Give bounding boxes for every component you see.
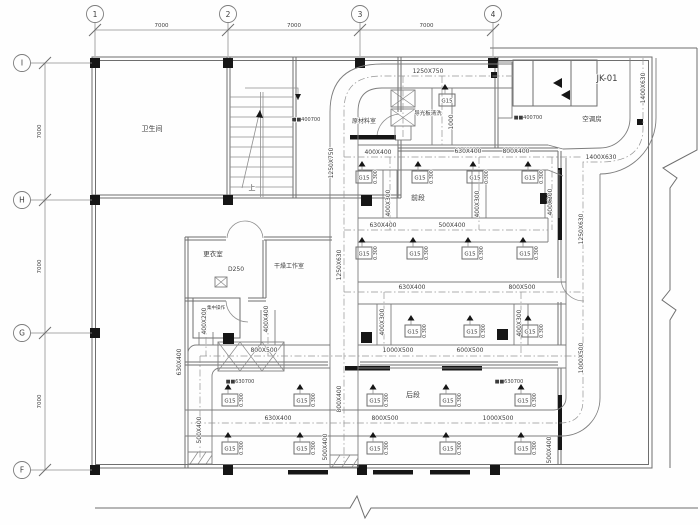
diffuser-tag: G15 [442,399,454,405]
flow-arrow-icon [225,432,232,438]
duct-size-label: D250 [228,266,244,273]
grid-col-label: 4 [491,10,496,19]
duct-size-label: 1000X500 [383,347,414,354]
duct-size-label-vertical: 500X400 [196,416,203,443]
grille-label: ■■630700 [226,379,255,385]
diffuser-tag: G15 [519,252,531,258]
flow-arrow-icon [465,237,472,243]
jk01-air-handling-unit [513,60,597,106]
labels-layer: 卫生间原材料室导光板清洗空调房更衣室干燥工作室集中操作前段后段上JK-01125… [142,68,648,464]
grid-row-label: H [19,196,25,205]
flow-arrow-icon [410,237,417,243]
diffuser-g15: G150.300 [367,432,390,455]
level-label: 0.300 [239,441,245,455]
hvac-floor-plan-drawing: 1234700070007000IHGF700070007000 G150.30… [0,0,700,525]
diffuser-tag: G15 [524,330,536,336]
room-label: 导光板清洗 [414,109,442,117]
duct-size-label: 800X500 [508,284,535,291]
diffuser-g15: G150.300 [464,315,487,338]
grid-row-label: G [19,329,25,338]
flow-arrow-icon [370,384,377,390]
flow-arrow-icon [443,384,450,390]
duct-size-label-vertical: 400X300 [547,188,554,215]
room-label: 集中操作 [207,304,225,311]
diffuser-tag: G15 [524,176,536,182]
duct-size-label-vertical: 1000 [448,114,455,129]
diffuser-g15: G150.300 [405,315,428,338]
flow-arrow-icon [297,432,304,438]
level-label: 0.300 [484,170,490,184]
diffuser-g15: G150.300 [522,315,545,338]
duct-size-label: 800X400 [502,148,529,155]
duct-size-label-vertical: 1250X630 [336,249,343,280]
level-label: 0.300 [239,393,245,407]
duct-size-label-vertical: 400X300 [516,309,523,336]
duct-size-label-vertical: 500X400 [322,433,329,460]
diffuser-g15: G150.300 [522,161,545,184]
duct-size-label-vertical: 1400X630 [640,72,647,103]
level-label: 0.300 [311,441,317,455]
duct-size-label: 1000X500 [483,415,514,422]
diffuser-g15: G150.300 [412,161,435,184]
flow-arrow-icon [359,237,366,243]
diffuser-tag: G15 [369,447,381,453]
diffuser-g15: G150.300 [222,384,245,407]
diffuser-tag: G15 [296,447,308,453]
diffuser-g15: G150.300 [515,384,538,407]
room-label: 原材料室 [352,117,376,125]
dim-text: 7000 [37,394,43,408]
diffuser-tag: G15 [358,176,370,182]
diffuser-g15: G150.300 [440,432,463,455]
duct-size-label: 630X400 [369,222,396,229]
dim-text: 7000 [287,23,301,29]
duct-size-label-vertical: 400X300 [474,190,481,217]
level-label: 0.300 [539,170,545,184]
level-label: 0.300 [373,246,379,260]
diffuser-tag: G15 [517,399,529,405]
duct-size-label: 500X400 [438,222,465,229]
duct-size-label: 400X400 [364,149,391,156]
flow-arrow-icon [443,432,450,438]
level-label: 0.300 [532,441,538,455]
diffuser-g15: G150.300 [294,432,317,455]
duct-size-label: 1400X630 [586,154,617,161]
diffuser-tag: G15 [466,330,478,336]
duct-size-label-vertical: 400X200 [201,307,208,334]
duct-size-label-vertical: 400X300 [385,189,392,216]
flow-arrow-icon [442,84,449,90]
flow-arrow-icon [525,161,532,167]
duct-size-label: 1250X750 [413,68,444,75]
diffuser-g15: G150.300 [515,432,538,455]
flow-arrow-icon [297,384,304,390]
plan-canvas: 1234700070007000IHGF700070007000 G150.30… [0,0,700,525]
room-label: 空调房 [582,114,602,123]
equipment-tag: JK-01 [595,74,617,84]
dim-text: 7000 [37,259,43,273]
diffuser-tag: G15 [517,447,529,453]
diffusers-layer: G150.300G150.300G150.300G150.300G150.300… [222,84,545,455]
duct-size-label-vertical: 800X400 [336,385,343,412]
level-label: 0.300 [481,324,487,338]
level-label: 0.300 [384,441,390,455]
diffuser-g15: G150.300 [367,384,390,407]
stairs [230,88,301,197]
level-label: 0.300 [422,324,428,338]
diffuser-g15: G150.300 [294,384,317,407]
flow-arrow-icon [518,432,525,438]
diffuser-tag: G15 [409,252,421,258]
room-label: 更衣室 [203,249,223,258]
diffuser-g15: G150.300 [356,237,379,260]
level-label: 0.300 [534,246,540,260]
diffuser-tag: G15 [414,176,426,182]
flow-arrow-icon [470,161,477,167]
diffuser-tag: G15 [442,447,454,453]
diffuser-tag: G15 [224,447,236,453]
room-label: 上 [249,183,256,192]
duct-size-label: 800X500 [371,415,398,422]
duct-size-label-vertical: 630X400 [176,348,183,375]
flow-arrow-icon [415,161,422,167]
duct-size-label-vertical: 500X400 [546,436,553,463]
grille-label: ■■630700 [495,379,524,385]
flow-arrow-icon [467,315,474,321]
duct-size-label: 630X400 [264,415,291,422]
level-label: 0.300 [539,324,545,338]
level-label: 0.300 [311,393,317,407]
diffuser-tag: G15 [441,99,453,105]
diffuser-tag: G15 [407,330,419,336]
level-label: 0.300 [479,246,485,260]
diffuser-tag: G15 [469,176,481,182]
flow-arrow-icon [408,315,415,321]
diffuser-g15: G150.300 [356,161,379,184]
flow-arrow-icon [359,161,366,167]
grid-row-label: F [20,466,24,475]
diffuser-g15: G150.300 [407,237,430,260]
diffuser-tag: G15 [369,399,381,405]
level-label: 0.300 [457,441,463,455]
level-label: 0.300 [429,170,435,184]
level-label: 0.300 [532,393,538,407]
duct-size-label: 800X500 [250,347,277,354]
diffuser-tag: G15 [296,399,308,405]
diffuser-g15: G150.300 [517,237,540,260]
flow-arrow-icon [520,237,527,243]
flow-arrow-icon [370,432,377,438]
diffuser-g15: G150.300 [467,161,490,184]
grille-label: ■■400700 [292,117,321,123]
duct-size-label: 630X400 [398,284,425,291]
room-label: 后段 [406,390,420,399]
level-label: 0.300 [457,393,463,407]
duct-size-label-vertical: 400X300 [379,308,386,335]
level-label: 0.300 [424,246,430,260]
level-label: 0.300 [373,170,379,184]
grille-label: ■■400700 [514,115,543,121]
room-label: 前段 [411,193,425,202]
grid-col-label: 2 [226,10,231,19]
duct-size-label-vertical: 1000X500 [578,342,585,373]
diffuser-tag: G15 [464,252,476,258]
room-label: 干燥工作室 [274,262,304,270]
dim-text: 7000 [37,124,43,138]
diffuser-g15: G15 [439,84,455,106]
dim-text: 7000 [420,23,434,29]
diffuser-tag: G15 [224,399,236,405]
wall-section-bars [288,135,562,475]
grid-col-label: 1 [93,10,98,19]
duct-size-label: 630X400 [454,148,481,155]
duct-size-label: 600X500 [456,347,483,354]
level-label: 0.300 [384,393,390,407]
duct-size-label-vertical: 1250X630 [578,213,585,244]
diffuser-tag: G15 [358,252,370,258]
diffuser-g15: G150.300 [440,384,463,407]
duct-size-label-vertical: 400X400 [263,305,270,332]
duct-size-label-vertical: 1250X750 [328,147,335,178]
diffuser-g15: G150.300 [222,432,245,455]
room-label: 卫生间 [142,124,163,133]
grid-row-label: I [21,59,23,68]
diffuser-g15: G150.300 [462,237,485,260]
grid-col-label: 3 [358,10,363,19]
dim-text: 7000 [155,23,169,29]
flow-arrow-icon [525,315,532,321]
